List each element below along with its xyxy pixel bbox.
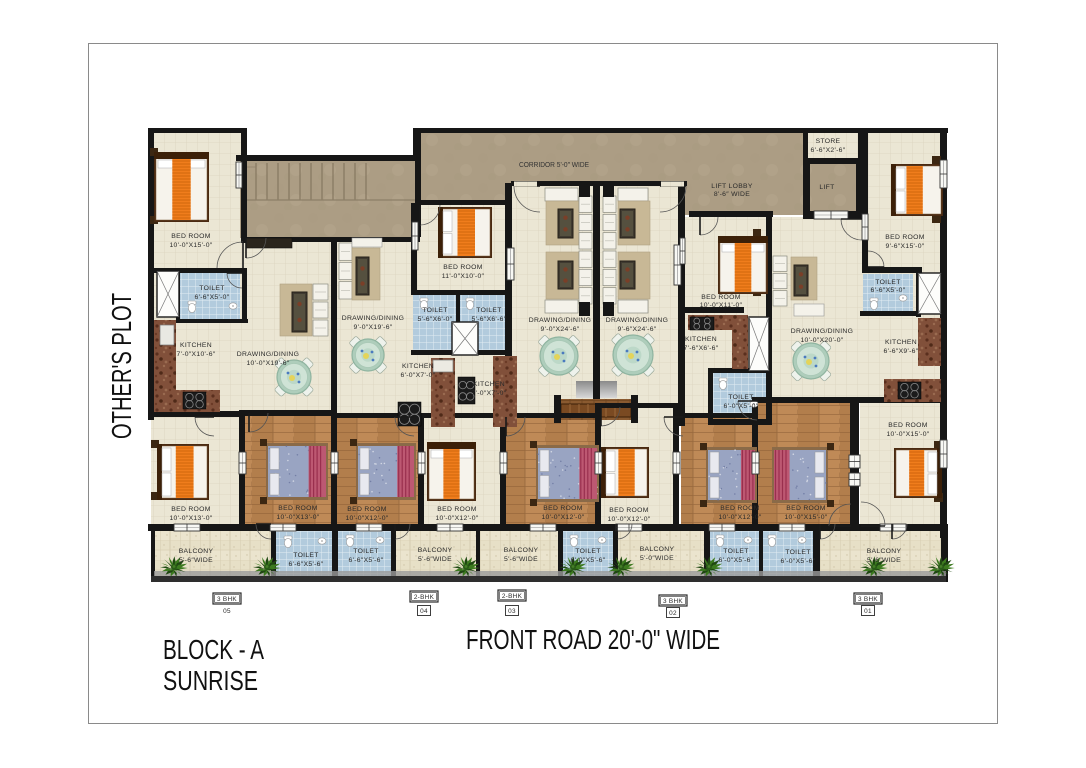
svg-text:5'-6″WIDE: 5'-6″WIDE bbox=[418, 556, 452, 563]
svg-text:BED ROOM: BED ROOM bbox=[443, 264, 482, 271]
svg-text:TOILET: TOILET bbox=[353, 548, 378, 555]
svg-text:6'-0″X7'-0″: 6'-0″X7'-0″ bbox=[401, 372, 436, 379]
svg-text:TOILET: TOILET bbox=[875, 279, 900, 286]
svg-text:3 BHK: 3 BHK bbox=[217, 596, 237, 603]
svg-text:CORRIDOR 5'-0″ WIDE: CORRIDOR 5'-0″ WIDE bbox=[519, 162, 589, 169]
svg-text:KITCHEN: KITCHEN bbox=[180, 342, 212, 349]
svg-text:02: 02 bbox=[669, 610, 677, 617]
svg-text:8'-6″ WIDE: 8'-6″ WIDE bbox=[714, 191, 750, 198]
svg-text:10'-0″X13'-0″: 10'-0″X13'-0″ bbox=[169, 515, 212, 522]
svg-text:04: 04 bbox=[420, 608, 428, 615]
svg-text:6'-6″X5'-0″: 6'-6″X5'-0″ bbox=[195, 294, 230, 301]
svg-text:BALCONY: BALCONY bbox=[504, 547, 539, 554]
svg-text:6'-0″X5'-6″: 6'-0″X5'-6″ bbox=[719, 557, 754, 564]
svg-text:10'-0″X12'-0″: 10'-0″X12'-0″ bbox=[718, 514, 761, 521]
svg-text:DRAWING/DINING: DRAWING/DINING bbox=[237, 351, 299, 358]
svg-text:10'-0″X12'-0″: 10'-0″X12'-0″ bbox=[345, 515, 388, 522]
svg-text:7'-0″X10'-6″: 7'-0″X10'-6″ bbox=[177, 351, 216, 358]
svg-text:STORE: STORE bbox=[816, 138, 841, 145]
svg-text:OTHER'S PLOT: OTHER'S PLOT bbox=[106, 293, 137, 439]
svg-text:2-BHK: 2-BHK bbox=[502, 593, 523, 600]
svg-text:10'-0″X19'-6″: 10'-0″X19'-6″ bbox=[246, 360, 289, 367]
svg-text:10'-0″X12'-0″: 10'-0″X12'-0″ bbox=[607, 516, 650, 523]
svg-text:9'-6″X15'-0″: 9'-6″X15'-0″ bbox=[886, 243, 925, 250]
svg-text:10'-0″X20'-0″: 10'-0″X20'-0″ bbox=[800, 337, 843, 344]
svg-text:10'-0″X15'-0″: 10'-0″X15'-0″ bbox=[784, 514, 827, 521]
svg-text:BED ROOM: BED ROOM bbox=[701, 294, 740, 301]
svg-text:3 BHK: 3 BHK bbox=[663, 598, 683, 605]
svg-text:01: 01 bbox=[864, 608, 872, 615]
svg-text:TOILET: TOILET bbox=[728, 394, 753, 401]
svg-text:BED ROOM: BED ROOM bbox=[609, 507, 648, 514]
svg-text:5'-6″WIDE: 5'-6″WIDE bbox=[179, 557, 213, 564]
svg-text:KITCHEN: KITCHEN bbox=[885, 339, 917, 346]
svg-text:03: 03 bbox=[508, 608, 516, 615]
svg-text:6'-0″X5'-0″: 6'-0″X5'-0″ bbox=[724, 403, 759, 410]
svg-text:BALCONY: BALCONY bbox=[179, 548, 214, 555]
svg-text:5'-6″X6'-0″: 5'-6″X6'-0″ bbox=[418, 316, 453, 323]
svg-text:5'-6″X6'-6″: 5'-6″X6'-6″ bbox=[472, 316, 507, 323]
svg-text:KITCHEN: KITCHEN bbox=[473, 381, 505, 388]
svg-text:FRONT ROAD 20'-0" WIDE: FRONT ROAD 20'-0" WIDE bbox=[466, 624, 720, 655]
svg-text:TOILET: TOILET bbox=[422, 307, 447, 314]
svg-text:KITCHEN: KITCHEN bbox=[402, 363, 434, 370]
svg-text:TOILET: TOILET bbox=[293, 552, 318, 559]
svg-text:6'-0″X5'-6″: 6'-0″X5'-6″ bbox=[781, 558, 816, 565]
svg-text:BED ROOM: BED ROOM bbox=[885, 234, 924, 241]
svg-text:BED ROOM: BED ROOM bbox=[786, 505, 825, 512]
svg-text:BLOCK - A: BLOCK - A bbox=[163, 634, 264, 665]
svg-text:DRAWING/DINING: DRAWING/DINING bbox=[342, 315, 404, 322]
svg-text:DRAWING/DINING: DRAWING/DINING bbox=[791, 328, 853, 335]
svg-text:BED ROOM: BED ROOM bbox=[888, 422, 927, 429]
svg-text:BALCONY: BALCONY bbox=[418, 547, 453, 554]
svg-text:10'-0″X12'-0″: 10'-0″X12'-0″ bbox=[541, 514, 584, 521]
svg-text:10'-0″X13'-0″: 10'-0″X13'-0″ bbox=[276, 514, 319, 521]
svg-text:10'-0″X15'-0″: 10'-0″X15'-0″ bbox=[169, 242, 212, 249]
svg-text:5'-6″WIDE: 5'-6″WIDE bbox=[504, 556, 538, 563]
svg-text:6'-6″X9'-6″: 6'-6″X9'-6″ bbox=[884, 348, 919, 355]
svg-text:SUNRISE: SUNRISE bbox=[163, 665, 258, 696]
svg-text:10'-0″X15'-0″: 10'-0″X15'-0″ bbox=[886, 431, 929, 438]
svg-text:TOILET: TOILET bbox=[785, 549, 810, 556]
svg-text:9'-0″X24'-6″: 9'-0″X24'-6″ bbox=[541, 326, 580, 333]
svg-text:7'-0″X7'-0″: 7'-0″X7'-0″ bbox=[472, 390, 507, 397]
svg-text:7'-6″X6'-6″: 7'-6″X6'-6″ bbox=[684, 345, 719, 352]
svg-text:TOILET: TOILET bbox=[723, 548, 748, 555]
svg-text:TOILET: TOILET bbox=[575, 548, 600, 555]
svg-text:KITCHEN: KITCHEN bbox=[685, 336, 717, 343]
svg-text:LIFT: LIFT bbox=[819, 184, 834, 191]
svg-text:BED ROOM: BED ROOM bbox=[171, 506, 210, 513]
svg-text:5'-0″WIDE: 5'-0″WIDE bbox=[640, 555, 674, 562]
svg-text:05: 05 bbox=[223, 608, 231, 615]
svg-text:5'-6″WIDE: 5'-6″WIDE bbox=[867, 557, 901, 564]
svg-text:BED ROOM: BED ROOM bbox=[278, 505, 317, 512]
svg-text:BED ROOM: BED ROOM bbox=[347, 506, 386, 513]
svg-text:2-BHK: 2-BHK bbox=[414, 594, 435, 601]
svg-text:11'-0″X10'-0″: 11'-0″X10'-0″ bbox=[442, 273, 485, 280]
svg-text:9'-6″X24'-6″: 9'-6″X24'-6″ bbox=[618, 326, 657, 333]
svg-text:BED ROOM: BED ROOM bbox=[171, 233, 210, 240]
svg-text:6'-6″X5'-0″: 6'-6″X5'-0″ bbox=[871, 287, 906, 294]
svg-text:TOILET: TOILET bbox=[476, 307, 501, 314]
svg-text:10'-0″X12'-0″: 10'-0″X12'-0″ bbox=[435, 515, 478, 522]
svg-text:6'-6″X5'-6″: 6'-6″X5'-6″ bbox=[349, 557, 384, 564]
svg-text:BED ROOM: BED ROOM bbox=[720, 505, 759, 512]
svg-text:TOILET: TOILET bbox=[199, 285, 224, 292]
svg-text:10'-0″X11'-0″: 10'-0″X11'-0″ bbox=[700, 302, 743, 309]
svg-text:6'-6″X5'-6″: 6'-6″X5'-6″ bbox=[289, 561, 324, 568]
svg-text:BED ROOM: BED ROOM bbox=[543, 505, 582, 512]
svg-text:BED ROOM: BED ROOM bbox=[437, 506, 476, 513]
svg-text:LIFT LOBBY: LIFT LOBBY bbox=[711, 183, 753, 190]
svg-text:6'-6″X2'-6″: 6'-6″X2'-6″ bbox=[811, 147, 846, 154]
svg-text:9'-0″X19'-6″: 9'-0″X19'-6″ bbox=[354, 324, 393, 331]
svg-text:3 BHK: 3 BHK bbox=[858, 596, 878, 603]
svg-text:DRAWING/DINING: DRAWING/DINING bbox=[606, 317, 668, 324]
svg-text:BALCONY: BALCONY bbox=[867, 548, 902, 555]
svg-text:DRAWING/DINING: DRAWING/DINING bbox=[529, 317, 591, 324]
svg-text:6'-0″X5'-6″: 6'-0″X5'-6″ bbox=[571, 557, 606, 564]
svg-text:BALCONY: BALCONY bbox=[640, 546, 675, 553]
